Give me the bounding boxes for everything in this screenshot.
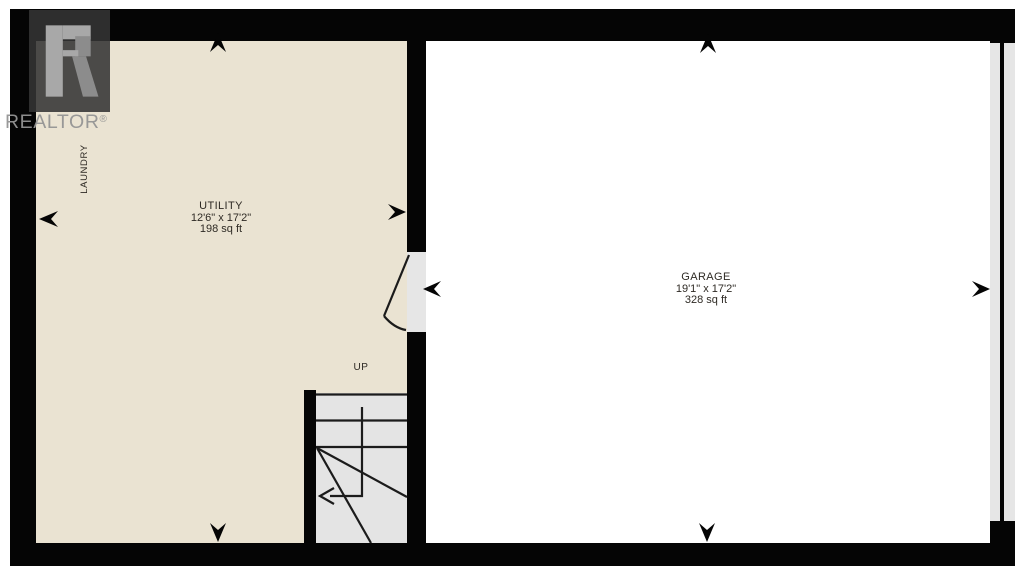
realtor-brand-text: REALTOR [5,111,100,133]
garage-overhead-door-line [1000,43,1004,521]
room-area: 328 sq ft [631,295,781,307]
utility-room-label: UTILITY 12'6" x 17'2" 198 sq ft [146,201,296,236]
wall-right-bottom-stub [990,521,1015,566]
room-name: GARAGE [631,272,781,284]
realtor-r-icon [38,21,100,101]
stairs-up-label: UP [348,362,374,373]
room-area: 198 sq ft [146,224,296,236]
registered-trademark-icon: ® [100,114,107,125]
wall-bottom [10,543,1015,566]
door-opening [407,252,426,332]
wall-interior-upper [407,41,426,252]
garage-room-label: GARAGE 19'1" x 17'2" 328 sq ft [631,272,781,307]
wall-top [10,9,1015,41]
staircase [316,393,407,543]
laundry-label: LAUNDRY [79,139,95,199]
wall-right-top-stub [990,9,1015,43]
room-name: UTILITY [146,201,296,213]
realtor-logo-letter: R [29,10,30,11]
wall-interior-lower [407,332,426,566]
realtor-logo: R [29,10,110,112]
floor-plan-canvas: UTILITY 12'6" x 17'2" 198 sq ft GARAGE 1… [0,0,1024,577]
stair-side-wall [304,390,316,543]
realtor-wordmark: REALTOR® [5,111,107,134]
